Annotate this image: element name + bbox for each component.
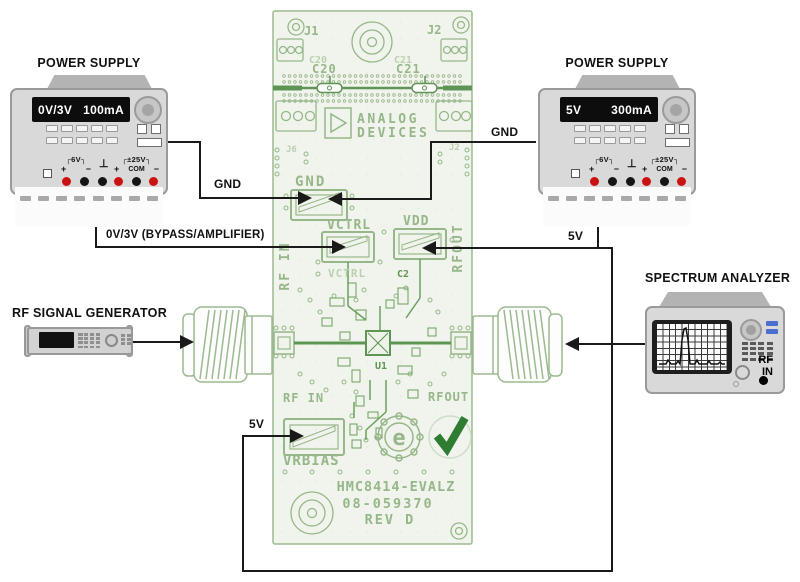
- power-supply-display: 0V/3V 100mA: [32, 97, 130, 122]
- pcb-label-rfin-vertical: RF IN: [278, 241, 293, 290]
- feet: [20, 196, 158, 201]
- power-supply-buttons: [574, 125, 646, 144]
- sma-connector-rf-in: [183, 307, 272, 382]
- display-voltage: 5V: [566, 103, 581, 117]
- terminal-black: [80, 177, 89, 186]
- power-supply-output-button: [665, 138, 690, 147]
- rf-generator-buttons: [121, 334, 131, 345]
- terminal-group-6v: ┌6V┐ +−: [589, 156, 619, 174]
- spectrum-analyzer-knob: [740, 319, 762, 341]
- small-indicator: [733, 381, 739, 387]
- display-current: 300mA: [611, 103, 652, 117]
- pcb-label-j2-small: J2: [449, 143, 460, 153]
- power-supply-right: POWER SUPPLY 5V 300mA ┌6V┐ +− ⊥ ┌±25V┐ +…: [538, 56, 696, 206]
- power-supply-left-title: POWER SUPPLY: [10, 56, 168, 70]
- power-supply-handle: [47, 75, 152, 89]
- pcb-label-gnd: GND: [295, 174, 326, 190]
- wire-label-gnd-right: GND: [491, 125, 518, 139]
- power-switch: [571, 169, 580, 178]
- pcb-assembly-number: 08-059370: [342, 496, 433, 512]
- power-supply-handle: [575, 75, 680, 89]
- spectrum-analyzer-handle: [659, 292, 771, 307]
- terminal-red: [590, 177, 599, 186]
- terminal-red: [149, 177, 158, 186]
- sma-connector-rf-out: [473, 307, 562, 382]
- test-setup-diagram: e J1 J2 C20 C20 C21 C21 ANALOG DEVICES J…: [0, 0, 800, 582]
- pcb-label-c21: C21: [396, 62, 421, 76]
- pcb-label-j2: J2: [427, 23, 441, 37]
- pcb-label-j1: J1: [304, 24, 318, 38]
- feet: [548, 196, 686, 201]
- power-supply-right-title: POWER SUPPLY: [538, 56, 696, 70]
- power-supply-aux-buttons: [665, 124, 689, 134]
- display-current: 100mA: [83, 103, 124, 117]
- power-supply-display: 5V 300mA: [560, 97, 658, 122]
- terminal-ground-symbol: ⊥: [99, 159, 109, 170]
- blue-buttons: [766, 321, 778, 334]
- arrow-rfout-to-analyzer: [565, 337, 579, 351]
- terminal-ground-symbol: ⊥: [627, 159, 637, 170]
- spectrum-trace: [657, 324, 727, 370]
- terminal-panel: [15, 187, 163, 227]
- power-supply-buttons: [46, 125, 118, 144]
- rf-in-label: RF IN: [747, 355, 773, 378]
- pcb-label-rfin: RF IN: [283, 391, 324, 405]
- terminal-red: [642, 177, 651, 186]
- power-switch: [43, 169, 52, 178]
- terminal-black: [626, 177, 635, 186]
- pcb-label-vctrl-ghost: VCTRL: [328, 267, 366, 280]
- pcb-revision: REV D: [365, 512, 416, 528]
- wire-label-5v-vrbias: 5V: [249, 417, 264, 431]
- e-mark-letter: e: [392, 426, 405, 451]
- wire-label-vctrl-feed: 0V/3V (BYPASS/AMPLIFIER): [106, 229, 265, 241]
- power-supply-knob: [134, 96, 162, 124]
- evaluation-board: e J1 J2 C20 C20 C21 C21 ANALOG DEVICES J…: [273, 11, 472, 544]
- terminal-group-25v: ┌±25V┐ +COM−: [114, 156, 159, 174]
- spectrum-analyzer: SPECTRUM ANALYZER RF IN: [645, 271, 785, 401]
- terminal-red: [677, 177, 686, 186]
- power-supply-aux-buttons: [137, 124, 161, 134]
- terminal-black: [132, 177, 141, 186]
- rf-generator-knob: [105, 334, 118, 347]
- terminal-group-25v: ┌±25V┐ +COM−: [642, 156, 687, 174]
- wire-label-gnd-left: GND: [214, 177, 241, 191]
- pcb-label-c20: C20: [312, 62, 337, 76]
- pcb-label-vdd: VDD: [403, 214, 429, 229]
- pcb-label-vctrl: VCTRL: [327, 218, 371, 233]
- terminal-red: [62, 177, 71, 186]
- rf-generator-keypad: [78, 333, 100, 348]
- power-supply-left: POWER SUPPLY 0V/3V 100mA ┌6V┐ +− ⊥ ┌±25V…: [10, 56, 168, 206]
- bnc-connector-ring: [735, 365, 750, 380]
- terminal-red: [114, 177, 123, 186]
- rf-generator-display: [39, 332, 74, 348]
- rf-in-connector-dot: [759, 376, 768, 385]
- pcb-label-c2: C2: [397, 269, 409, 280]
- rf-signal-generator: RF SIGNAL GENERATOR: [12, 306, 192, 364]
- terminal-group-6v: ┌6V┐ +−: [61, 156, 91, 174]
- pcb-label-u1: U1: [375, 361, 387, 372]
- terminal-panel: [543, 187, 691, 227]
- pcb-label-rfout: RFOUT: [428, 390, 469, 404]
- brand-devices: DEVICES: [357, 126, 429, 141]
- terminal-black: [608, 177, 617, 186]
- pcb-label-j6: J6: [286, 145, 297, 155]
- spectrum-screen: [657, 324, 727, 370]
- power-supply-knob: [662, 96, 690, 124]
- power-supply-output-button: [137, 138, 162, 147]
- spectrum-analyzer-title: SPECTRUM ANALYZER: [645, 271, 785, 285]
- rf-generator-title: RF SIGNAL GENERATOR: [12, 306, 192, 320]
- wire-label-5v-vdd: 5V: [568, 229, 583, 243]
- display-voltage: 0V/3V: [38, 103, 72, 117]
- terminal-black: [660, 177, 669, 186]
- pcb-label-vrbias: VRBIAS: [283, 453, 340, 469]
- pcb-part-number: HMC8414-EVALZ: [337, 479, 456, 495]
- brand-analog: ANALOG: [357, 112, 419, 127]
- terminal-black: [98, 177, 107, 186]
